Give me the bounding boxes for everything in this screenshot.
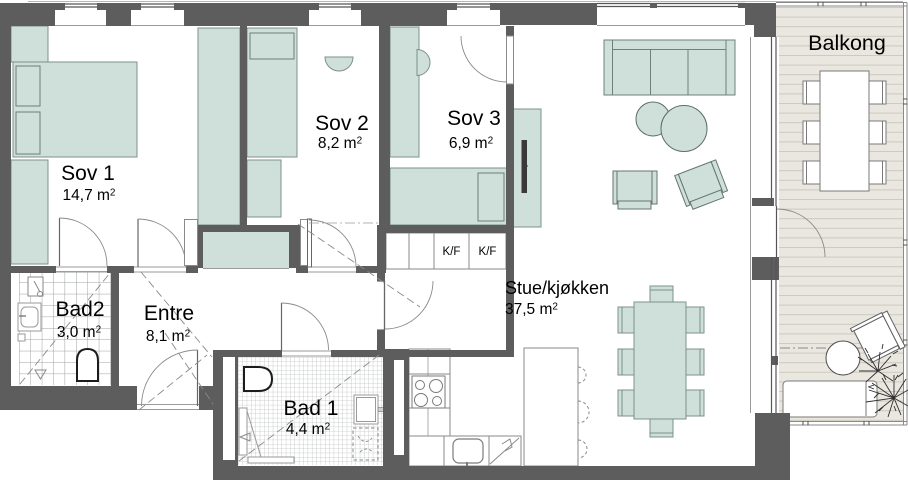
svg-text:3,0 m2: 3,0 m2 xyxy=(57,324,102,341)
svg-text:14,7 m2: 14,7 m2 xyxy=(63,187,116,204)
svg-text:Sov 2: Sov 2 xyxy=(315,112,369,135)
svg-text:8,2 m2: 8,2 m2 xyxy=(318,135,363,152)
svg-text:Stue/kjøkken: Stue/kjøkken xyxy=(505,278,609,298)
svg-text:Bad2: Bad2 xyxy=(55,298,104,321)
svg-text:6,9 m2: 6,9 m2 xyxy=(449,135,494,152)
svg-text:Sov 1: Sov 1 xyxy=(61,162,115,185)
svg-text:8,1 m2: 8,1 m2 xyxy=(146,328,191,345)
svg-text:K/F: K/F xyxy=(443,246,461,258)
svg-text:Bad 1: Bad 1 xyxy=(284,397,339,420)
svg-text:Balkong: Balkong xyxy=(808,31,886,55)
svg-text:4,4 m2: 4,4 m2 xyxy=(286,421,331,438)
svg-text:Entre: Entre xyxy=(144,302,194,325)
svg-text:K/F: K/F xyxy=(479,246,497,258)
svg-text:37,5 m2: 37,5 m2 xyxy=(505,301,558,318)
svg-text:Sov 3: Sov 3 xyxy=(447,107,501,130)
